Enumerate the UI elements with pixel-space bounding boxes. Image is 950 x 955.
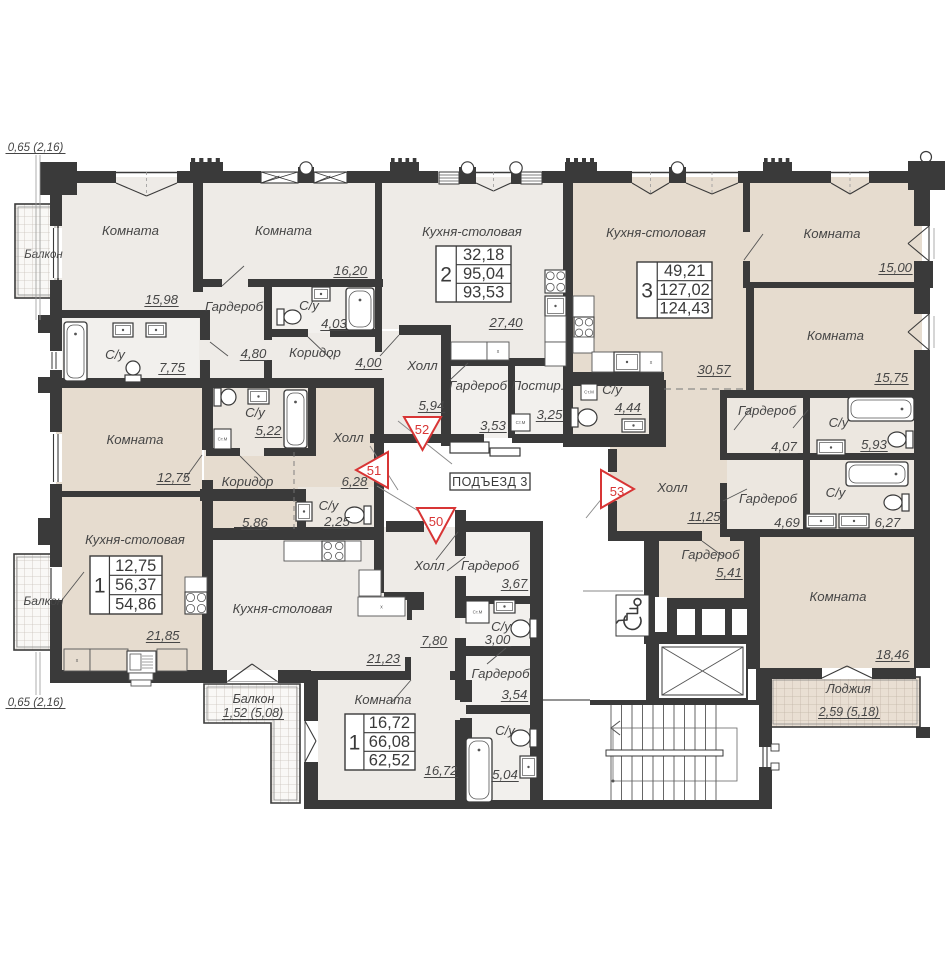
svg-text:1: 1 [94,575,106,598]
svg-text:ПОДЪЕЗД 3: ПОДЪЕЗД 3 [452,475,528,489]
svg-text:15,00: 15,00 [879,260,913,275]
svg-text:Балкон: Балкон [23,594,63,608]
svg-text:С/у: С/у [602,382,623,397]
svg-text:Ст.М: Ст.М [516,420,526,425]
svg-text:5,86: 5,86 [242,515,268,530]
svg-text:Лоджия: Лоджия [825,682,871,696]
svg-text:2,25: 2,25 [323,514,350,529]
svg-text:Комната: Комната [810,589,867,604]
svg-text:3,67: 3,67 [502,576,528,591]
svg-text:4,80: 4,80 [241,346,267,361]
svg-text:Ст.М: Ст.М [218,437,228,442]
svg-text:4,44: 4,44 [615,400,641,415]
svg-text:127,02: 127,02 [659,281,709,299]
svg-text:62,52: 62,52 [369,752,410,770]
svg-text:С/у: С/у [495,723,516,738]
svg-text:6,27: 6,27 [875,515,901,530]
svg-text:21,85: 21,85 [145,628,180,643]
svg-text:Холл: Холл [413,558,445,573]
svg-text:95,04: 95,04 [463,265,504,283]
svg-text:Коридор: Коридор [222,474,274,489]
svg-text:Гардероб: Гардероб [681,547,740,562]
svg-text:32,18: 32,18 [463,246,504,264]
svg-text:Балкон: Балкон [24,249,63,261]
svg-text:27,40: 27,40 [488,315,523,330]
svg-text:5,94: 5,94 [419,398,445,413]
svg-text:Комната: Комната [255,223,312,238]
svg-text:12,75: 12,75 [115,557,156,575]
svg-text:5,04: 5,04 [492,767,518,782]
svg-text:Холл: Холл [332,430,364,445]
svg-text:49,21: 49,21 [664,262,705,280]
svg-text:Гардероб: Гардероб [205,299,264,314]
svg-text:4,69: 4,69 [774,515,800,530]
svg-text:53: 53 [610,484,624,499]
svg-text:3,25: 3,25 [537,407,563,422]
svg-text:0,65 (2,16): 0,65 (2,16) [8,697,64,709]
svg-text:2,59 (5,18): 2,59 (5,18) [818,705,879,719]
svg-text:50: 50 [429,514,443,529]
svg-text:Гардероб: Гардероб [461,558,520,573]
svg-text:Комната: Комната [807,328,864,343]
svg-text:15,98: 15,98 [145,292,179,307]
svg-text:Холл: Холл [656,480,688,495]
svg-text:Балкон: Балкон [233,692,275,706]
svg-text:Гардероб: Гардероб [449,378,508,393]
svg-text:5,93: 5,93 [861,437,887,452]
svg-text:1,52 (5,08): 1,52 (5,08) [223,706,283,720]
svg-text:66,08: 66,08 [369,733,410,751]
svg-text:4,00: 4,00 [356,355,382,370]
svg-text:3,54: 3,54 [502,687,528,702]
svg-text:52: 52 [415,422,429,437]
svg-text:16,20: 16,20 [334,263,368,278]
svg-text:3,00: 3,00 [485,632,511,647]
svg-text:Комната: Комната [107,432,164,447]
svg-text:16,72: 16,72 [369,714,410,732]
svg-text:93,53: 93,53 [463,284,504,302]
svg-text:С/у: С/у [829,415,850,430]
svg-text:7,80: 7,80 [421,633,447,648]
svg-text:5,22: 5,22 [256,423,282,438]
svg-text:Гардероб: Гардероб [471,666,530,681]
svg-text:54,86: 54,86 [115,596,156,614]
svg-text:30,57: 30,57 [697,362,731,377]
svg-text:2: 2 [440,264,452,287]
svg-text:Комната: Комната [355,692,412,707]
svg-text:6,28: 6,28 [342,474,368,489]
svg-text:Кухня-столовая: Кухня-столовая [85,532,185,547]
svg-text:Холл: Холл [406,358,438,373]
svg-text:5,41: 5,41 [716,565,742,580]
svg-text:Коридор: Коридор [289,345,341,360]
svg-text:4,03: 4,03 [321,316,347,331]
svg-text:Кухня-столовая: Кухня-столовая [233,601,333,616]
svg-text:3: 3 [641,280,653,303]
svg-text:16,72: 16,72 [424,763,458,778]
svg-text:18,46: 18,46 [876,647,910,662]
svg-text:Кухня-столовая: Кухня-столовая [606,225,706,240]
svg-text:0,65 (2,16): 0,65 (2,16) [8,142,64,154]
svg-text:21,23: 21,23 [366,651,401,666]
svg-text:С/у: С/у [826,485,847,500]
svg-text:1: 1 [349,732,361,755]
svg-text:Комната: Комната [102,223,159,238]
svg-text:Комната: Комната [804,226,861,241]
svg-text:Гардероб: Гардероб [738,403,797,418]
svg-text:4,07: 4,07 [771,439,797,454]
svg-text:С/у: С/у [245,405,266,420]
svg-text:С/у: С/у [319,498,340,513]
svg-text:3,53: 3,53 [480,418,506,433]
svg-text:Ст.М: Ст.М [584,390,594,395]
svg-text:С/у: С/у [299,298,320,313]
svg-text:Ст.М: Ст.М [473,610,483,615]
svg-text:12,75: 12,75 [157,470,191,485]
svg-text:15,75: 15,75 [875,370,909,385]
svg-text:124,43: 124,43 [659,300,709,318]
svg-text:С/у: С/у [105,347,126,362]
svg-text:11,25: 11,25 [688,509,721,524]
svg-text:Кухня-столовая: Кухня-столовая [422,224,522,239]
svg-text:7,75: 7,75 [159,360,185,375]
svg-text:51: 51 [367,463,381,478]
svg-text:Гардероб: Гардероб [739,491,798,506]
svg-text:Постир.: Постир. [512,378,565,393]
svg-text:56,37: 56,37 [115,576,156,594]
